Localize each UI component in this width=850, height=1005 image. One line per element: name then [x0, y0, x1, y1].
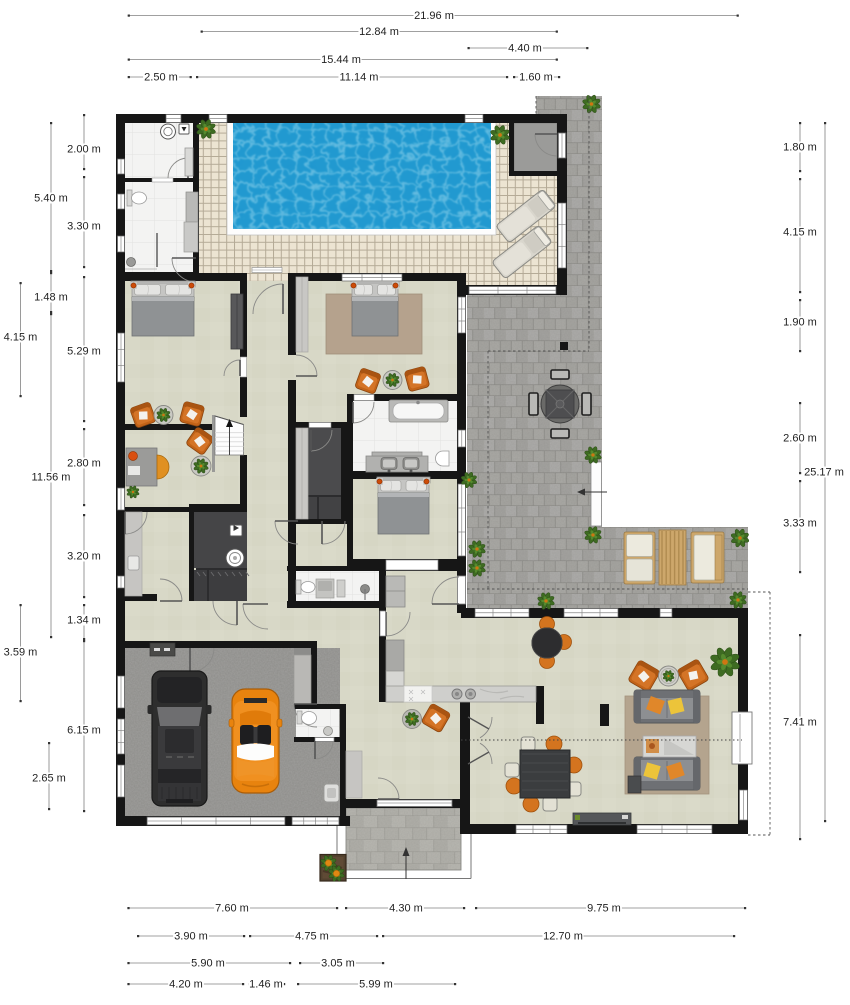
- svg-text:3.90 m: 3.90 m: [174, 931, 208, 943]
- svg-text:5.40 m: 5.40 m: [34, 193, 68, 205]
- svg-text:15.44 m: 15.44 m: [321, 54, 361, 66]
- svg-text:4.75 m: 4.75 m: [295, 931, 329, 943]
- svg-text:12.70 m: 12.70 m: [543, 931, 583, 943]
- svg-text:1.80 m: 1.80 m: [783, 142, 817, 154]
- svg-text:5.99 m: 5.99 m: [359, 979, 393, 991]
- svg-text:3.20 m: 3.20 m: [67, 551, 101, 563]
- svg-text:4.15 m: 4.15 m: [783, 227, 817, 239]
- svg-text:2.80 m: 2.80 m: [67, 458, 101, 470]
- svg-text:21.96 m: 21.96 m: [414, 10, 454, 22]
- svg-text:11.14 m: 11.14 m: [340, 72, 379, 84]
- svg-text:7.60 m: 7.60 m: [215, 903, 249, 915]
- svg-text:3.33 m: 3.33 m: [783, 518, 817, 530]
- svg-text:1.90 m: 1.90 m: [783, 317, 817, 329]
- svg-text:2.00 m: 2.00 m: [67, 144, 101, 156]
- svg-text:25.17 m: 25.17 m: [804, 467, 844, 479]
- svg-text:9.75 m: 9.75 m: [587, 903, 621, 915]
- svg-text:3.05 m: 3.05 m: [321, 958, 355, 970]
- svg-text:2.65 m: 2.65 m: [32, 773, 66, 785]
- svg-text:4.40 m: 4.40 m: [508, 43, 542, 55]
- svg-text:4.15 m: 4.15 m: [4, 332, 38, 344]
- svg-text:2.50 m: 2.50 m: [144, 72, 178, 84]
- svg-text:5.90 m: 5.90 m: [191, 958, 225, 970]
- svg-text:6.15 m: 6.15 m: [67, 725, 101, 737]
- svg-text:1.48 m: 1.48 m: [34, 292, 68, 304]
- svg-text:4.20 m: 4.20 m: [169, 979, 203, 991]
- svg-text:5.29 m: 5.29 m: [67, 346, 101, 358]
- svg-text:1.60 m: 1.60 m: [519, 72, 553, 84]
- svg-text:4.30 m: 4.30 m: [389, 903, 423, 915]
- svg-text:12.84 m: 12.84 m: [359, 26, 399, 38]
- svg-text:1.46 m: 1.46 m: [249, 979, 283, 991]
- svg-text:11.56 m: 11.56 m: [32, 472, 71, 484]
- svg-text:3.59 m: 3.59 m: [4, 647, 38, 659]
- svg-text:1.34 m: 1.34 m: [67, 615, 101, 627]
- svg-text:2.60 m: 2.60 m: [783, 433, 817, 445]
- svg-text:3.30 m: 3.30 m: [67, 221, 101, 233]
- svg-text:7.41 m: 7.41 m: [783, 717, 817, 729]
